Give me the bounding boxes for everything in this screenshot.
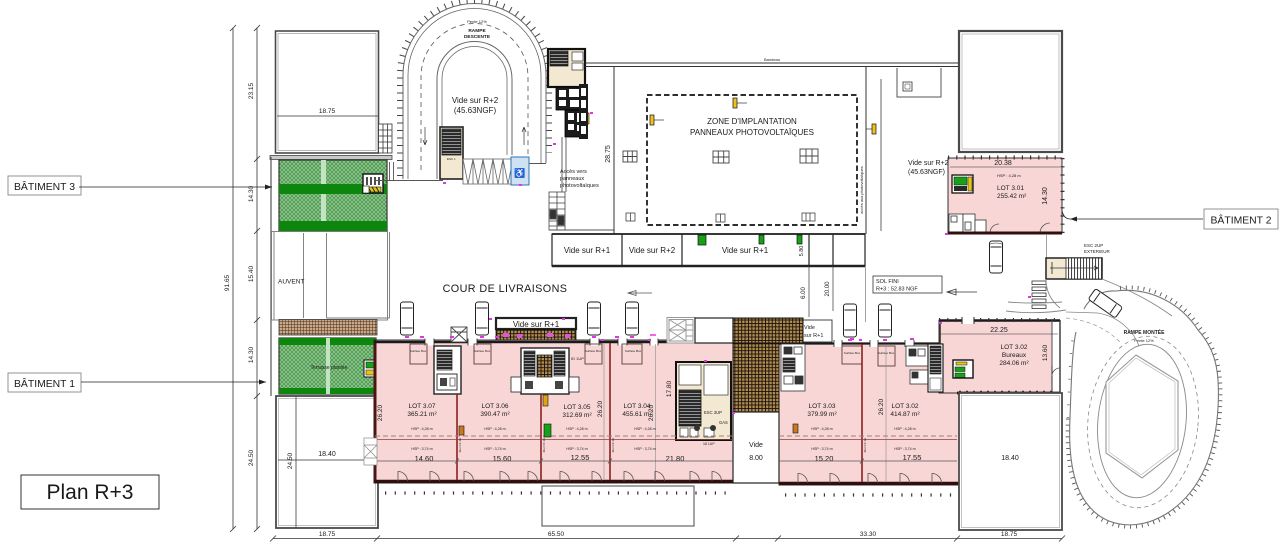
svg-text:SOL FINI: SOL FINI [876,279,899,285]
svg-text:Vide: Vide [804,325,815,331]
svg-text:Bandeau: Bandeau [764,57,780,62]
svg-text:26.20: 26.20 [377,404,384,421]
svg-text:26.20: 26.20 [597,400,604,417]
svg-text:(45.63NGF): (45.63NGF) [908,169,945,176]
svg-text:Mur CF 2H: Mur CF 2H [863,438,867,453]
svg-text:24.50: 24.50 [248,449,255,466]
svg-text:28.75: 28.75 [605,145,612,163]
svg-text:Plan R+3: Plan R+3 [47,481,134,504]
svg-text:26.20: 26.20 [648,404,655,421]
svg-text:(45.63NGF): (45.63NGF) [454,106,497,115]
svg-text:6.00: 6.00 [801,287,807,299]
svg-text:Vide sur R+1: Vide sur R+1 [722,246,769,255]
svg-text:GAS: GAS [719,420,728,425]
svg-text:18.75: 18.75 [319,108,336,115]
svg-text:ID 1UP: ID 1UP [571,356,584,361]
svg-text:BÂTIMENT 1: BÂTIMENT 1 [14,377,75,390]
svg-text:HSP : 3,74 m: HSP : 3,74 m [811,447,832,451]
svg-text:14.30: 14.30 [1042,187,1049,205]
svg-text:20.00: 20.00 [825,281,831,297]
svg-text:14.30: 14.30 [248,346,255,363]
svg-text:LOT 3.01: LOT 3.01 [997,185,1024,192]
svg-text:390.47 m²: 390.47 m² [480,411,510,418]
svg-text:Vide sur R+2: Vide sur R+2 [629,246,676,255]
svg-text:Surface Box: Surface Box [625,349,642,353]
svg-text:PANNEAUX PHOTOVOLTAÏQUES: PANNEAUX PHOTOVOLTAÏQUES [690,128,814,137]
svg-text:ZONE D'IMPLANTATION: ZONE D'IMPLANTATION [707,117,797,126]
svg-text:HSP : 3,74 m: HSP : 3,74 m [411,447,432,451]
svg-text:312.69 m²: 312.69 m² [562,412,592,419]
svg-text:panneaux: panneaux [560,176,584,182]
svg-text:Vide sur R+2: Vide sur R+2 [908,160,949,167]
svg-text:14.60: 14.60 [415,454,434,463]
svg-text:24.50: 24.50 [287,452,294,469]
svg-text:Accès vers: Accès vers [560,169,587,175]
svg-text:23.15: 23.15 [248,82,255,99]
svg-text:284.06 m²: 284.06 m² [999,360,1029,367]
svg-text:HSP : 3,74 m: HSP : 3,74 m [484,447,505,451]
svg-text:18.75: 18.75 [319,531,336,538]
svg-text:HSP : 4,28 m: HSP : 4,28 m [411,427,432,431]
svg-text:414.87 m²: 414.87 m² [890,411,920,418]
svg-text:15.60: 15.60 [493,454,512,463]
svg-text:18.40: 18.40 [1001,455,1019,462]
svg-text:8.00: 8.00 [749,455,763,462]
svg-text:18 1UP: 18 1UP [703,442,715,446]
svg-text:DESCENTE: DESCENTE [464,34,491,40]
svg-text:17.80: 17.80 [666,380,673,397]
svg-text:91.65: 91.65 [224,274,231,291]
svg-text:255.42 m²: 255.42 m² [997,193,1027,200]
svg-text:Terrasse plantée: Terrasse plantée [311,365,348,371]
svg-text:33.30: 33.30 [860,531,877,538]
svg-text:26.20: 26.20 [878,398,885,415]
svg-text:Pente 12%: Pente 12% [467,19,487,24]
svg-text:sur R+1: sur R+1 [804,333,823,339]
svg-text:HSP : 4,28 m: HSP : 4,28 m [997,173,1021,178]
svg-text:LOT 3.05: LOT 3.05 [564,404,591,411]
svg-text:LOT 3.07: LOT 3.07 [409,403,436,410]
svg-text:ESC 1: ESC 1 [447,157,456,161]
svg-text:15.40: 15.40 [248,265,255,282]
svg-text:Vide sur R+1: Vide sur R+1 [564,246,611,255]
svg-text:RAMPE: RAMPE [468,28,486,34]
svg-text:COUR DE LIVRAISONS: COUR DE LIVRAISONS [443,283,568,295]
svg-text:Surface Box: Surface Box [844,351,861,355]
svg-text:R+3 : 52.83 NGF: R+3 : 52.83 NGF [876,287,918,293]
svg-text:Vide: Vide [749,442,763,449]
svg-text:365.21 m²: 365.21 m² [407,411,437,418]
svg-text:Surface Box: Surface Box [474,349,491,353]
svg-text:Bureaux: Bureaux [1002,352,1027,359]
svg-text:Surface Box: Surface Box [410,349,427,353]
svg-text:LOT 3.03: LOT 3.03 [809,403,836,410]
svg-text:HSP : 4,28 m: HSP : 4,28 m [894,427,915,431]
svg-text:Vide sur R+1: Vide sur R+1 [513,320,560,329]
svg-text:HSP : 4,28 m: HSP : 4,28 m [566,427,587,431]
svg-text:HSP : 3,74 m: HSP : 3,74 m [634,447,655,451]
svg-text:HSP : 4,28 m: HSP : 4,28 m [484,427,505,431]
svg-text:Surface Box: Surface Box [585,349,602,353]
svg-text:5.80: 5.80 [799,246,805,257]
svg-text:ESC 3UP: ESC 3UP [704,410,722,415]
svg-text:379.99 m²: 379.99 m² [807,411,837,418]
svg-text:14.30: 14.30 [248,185,255,202]
svg-text:LOT 3.04: LOT 3.04 [624,403,651,410]
svg-text:LOT 3.06: LOT 3.06 [482,403,509,410]
svg-text:15.20: 15.20 [815,454,834,463]
svg-text:Mur CF 2H: Mur CF 2H [611,438,615,453]
svg-text:22.25: 22.25 [990,327,1008,334]
svg-text:Vide sur R+2: Vide sur R+2 [452,96,499,105]
svg-text:Mur CF 2H: Mur CF 2H [542,438,546,453]
svg-text:HSP : 4,28 m: HSP : 4,28 m [634,427,655,431]
svg-text:21.80: 21.80 [666,454,685,463]
svg-text:18.40: 18.40 [318,451,336,458]
svg-text:HSP : 3,74 m: HSP : 3,74 m [566,447,587,451]
svg-text:EXTERIEUR: EXTERIEUR [1084,249,1111,254]
svg-text:accès aux photovoltaïques: accès aux photovoltaïques [859,166,864,213]
svg-text:ESC 2UP: ESC 2UP [1084,243,1103,248]
svg-text:Mur CF 2H: Mur CF 2H [458,438,462,453]
svg-text:♿: ♿ [514,167,525,178]
svg-text:20.38: 20.38 [994,160,1012,167]
svg-text:LOT 3.02: LOT 3.02 [1001,344,1028,351]
svg-text:BÂTIMENT 3: BÂTIMENT 3 [14,180,75,193]
svg-text:13.60: 13.60 [1042,344,1049,361]
svg-text:LOT 3.02: LOT 3.02 [892,403,919,410]
svg-text:65.50: 65.50 [548,531,565,538]
svg-text:BÂTIMENT 2: BÂTIMENT 2 [1210,214,1271,227]
svg-text:HSP : 3,74 m: HSP : 3,74 m [894,447,915,451]
svg-text:RAMPE MONTÉE: RAMPE MONTÉE [1124,328,1166,336]
svg-text:AUVENT: AUVENT [278,279,304,286]
svg-text:18.75: 18.75 [1001,531,1018,538]
svg-text:HSP : 4,28 m: HSP : 4,28 m [811,427,832,431]
